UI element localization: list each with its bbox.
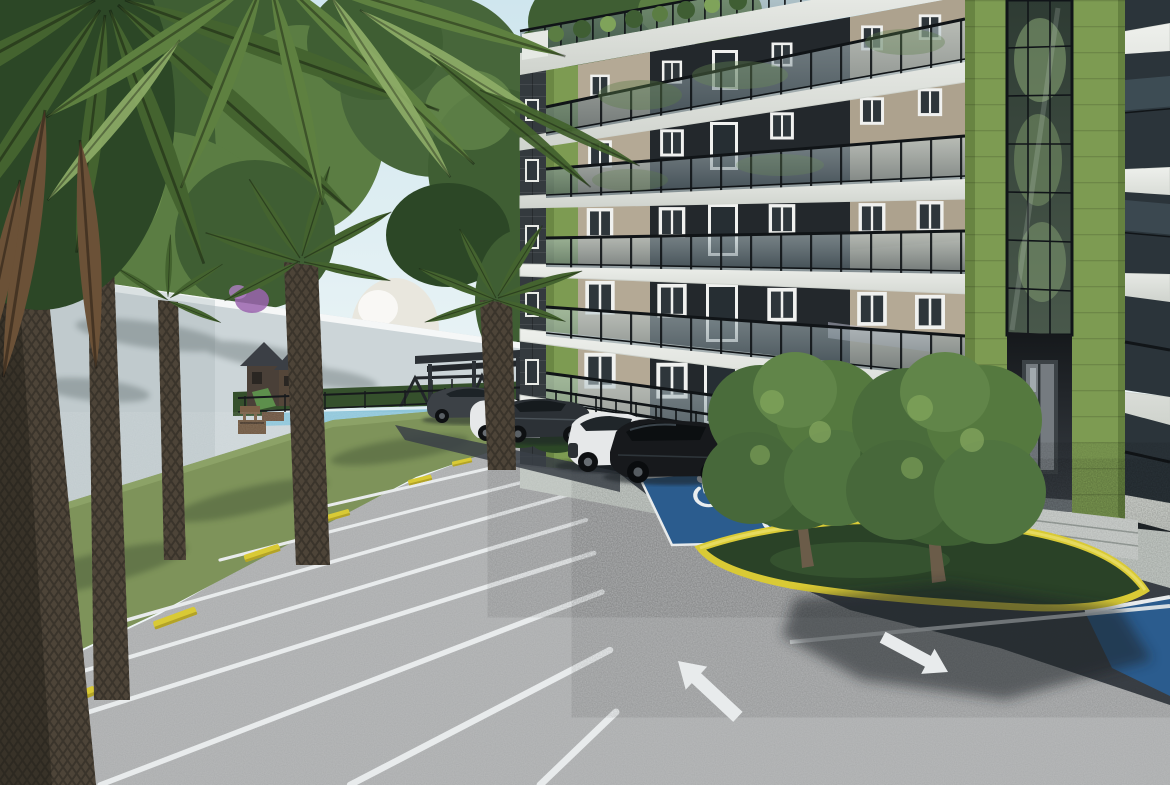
apartment-complex-render: [0, 0, 1170, 785]
render-viewport: [0, 0, 1170, 785]
curtain-wall-glazing: [1007, 0, 1072, 335]
